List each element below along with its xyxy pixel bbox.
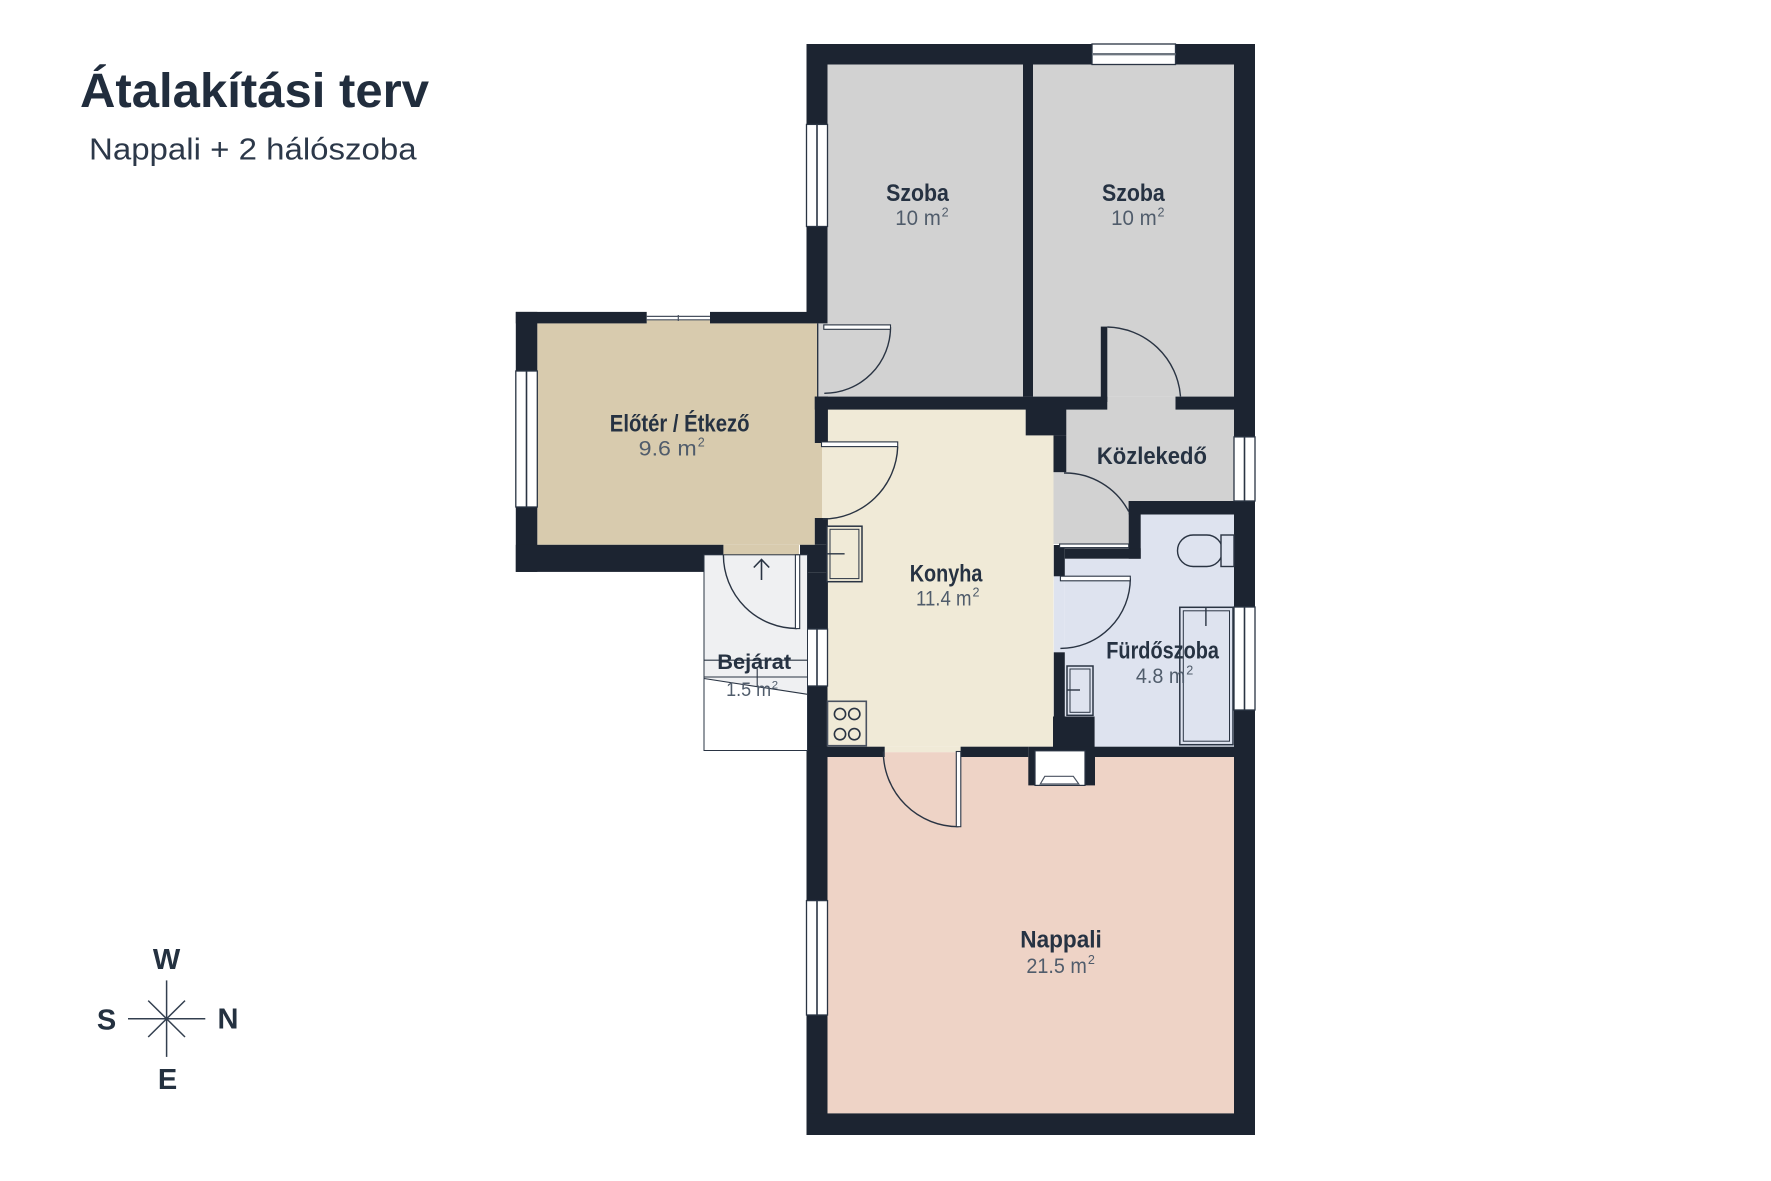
svg-text:2: 2 — [1158, 205, 1165, 219]
svg-text:2: 2 — [772, 680, 778, 692]
svg-text:2: 2 — [942, 205, 949, 219]
svg-text:Nappali: Nappali — [1020, 928, 1102, 954]
svg-text:Átalakítási terv: Átalakítási terv — [80, 64, 429, 118]
svg-text:Fürdőszoba: Fürdőszoba — [1106, 639, 1219, 665]
svg-text:1.5 m: 1.5 m — [726, 679, 771, 701]
svg-text:21.5 m: 21.5 m — [1026, 953, 1087, 978]
svg-text:Szoba: Szoba — [1102, 181, 1166, 207]
svg-text:Konyha: Konyha — [910, 562, 983, 588]
svg-text:9.6 m: 9.6 m — [639, 435, 697, 460]
svg-text:Közlekedő: Közlekedő — [1097, 444, 1207, 470]
svg-text:N: N — [218, 1004, 239, 1036]
svg-text:W: W — [153, 944, 181, 976]
svg-text:E: E — [158, 1064, 177, 1096]
svg-text:Nappali + 2 hálószoba: Nappali + 2 hálószoba — [89, 132, 417, 167]
svg-text:Bejárat: Bejárat — [717, 651, 791, 674]
svg-text:Szoba: Szoba — [886, 181, 950, 207]
svg-text:2: 2 — [973, 586, 980, 600]
svg-text:11.4 m: 11.4 m — [916, 585, 972, 610]
svg-text:10 m: 10 m — [1111, 205, 1157, 230]
svg-text:10 m: 10 m — [895, 205, 941, 230]
svg-text:2: 2 — [1186, 663, 1193, 677]
svg-text:2: 2 — [1088, 953, 1095, 967]
svg-text:4.8 m: 4.8 m — [1136, 663, 1186, 688]
svg-text:2: 2 — [698, 436, 705, 450]
svg-text:S: S — [97, 1005, 116, 1037]
svg-text:Előtér / Étkező: Előtér / Étkező — [610, 410, 750, 438]
